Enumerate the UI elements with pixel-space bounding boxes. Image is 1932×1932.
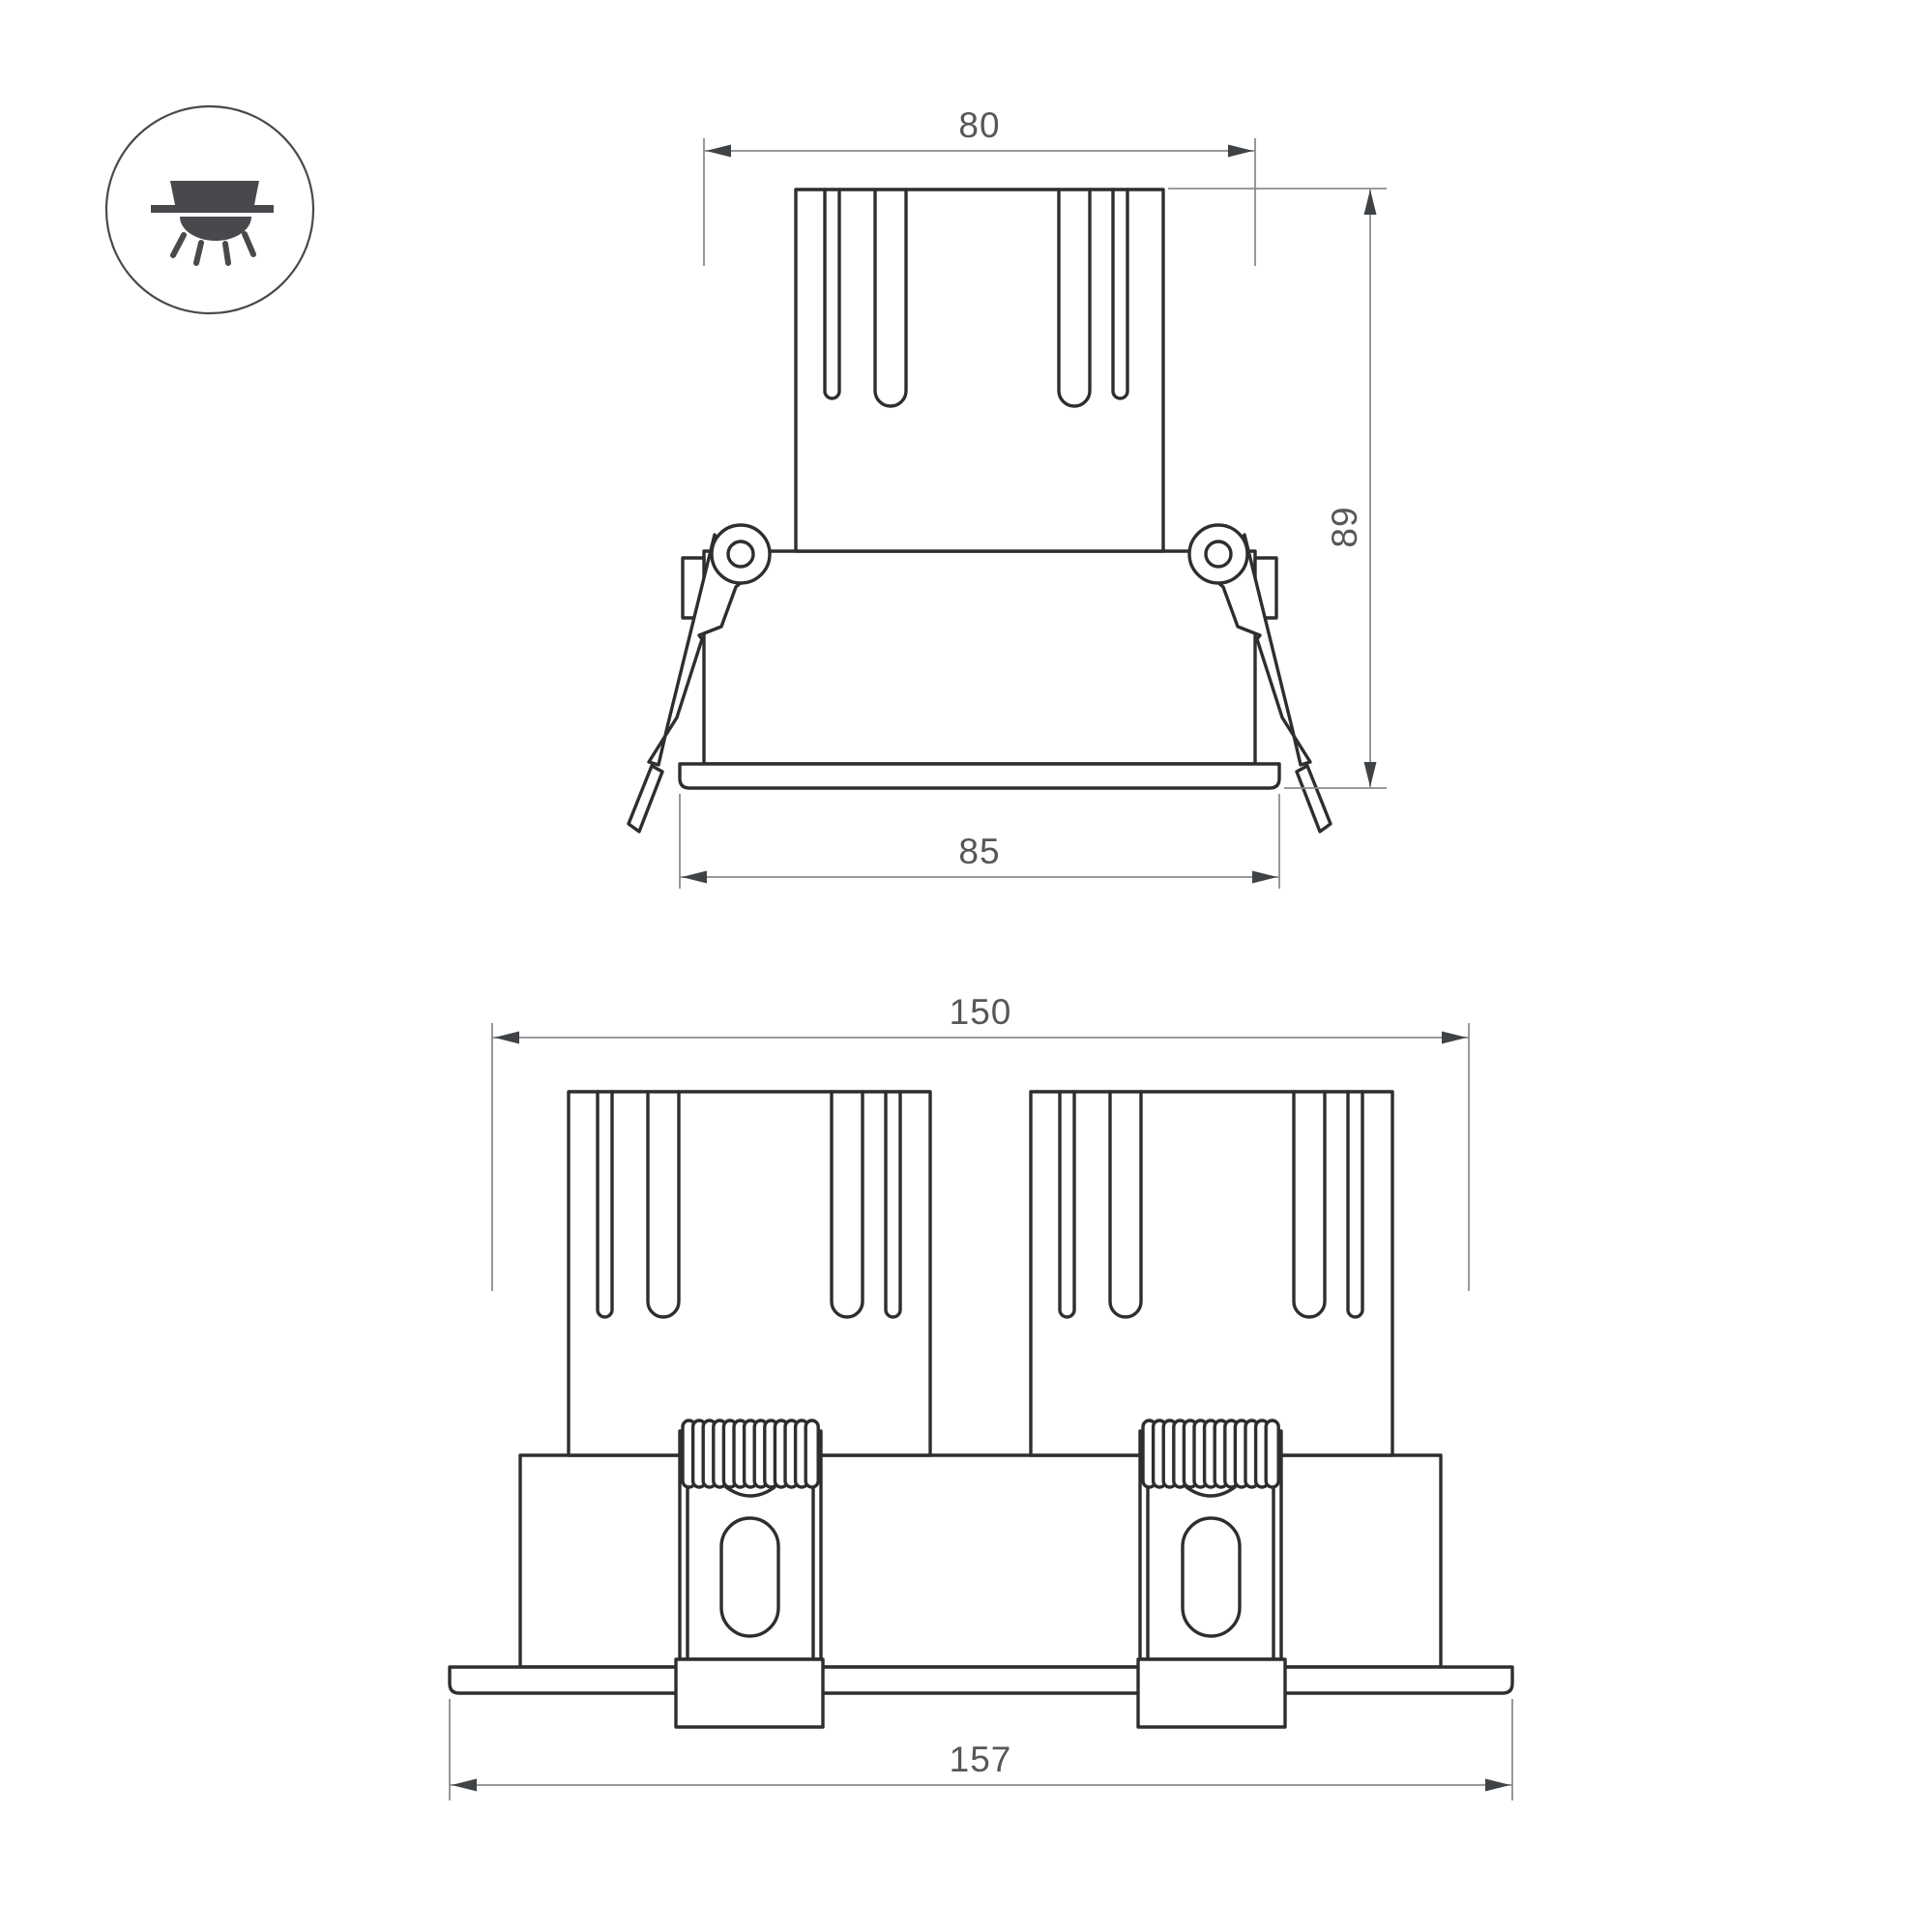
icon-light-ray [245,234,253,254]
icon-lamp-body [170,181,259,205]
coil-spring [683,1420,818,1487]
heatsink-body [1031,1092,1392,1455]
single-luminaire-view: 80 89 85 [629,105,1387,889]
icon-light-ray [173,235,184,255]
dimension-label-80: 80 [958,105,1000,145]
icon-light-dome [180,217,251,241]
clip-pivot-hole [728,542,753,567]
technical-drawing: 80 89 85 [0,0,1932,1932]
icon-light-ray [196,243,201,263]
heatsink-right [1031,1092,1392,1455]
arrowhead-left [682,871,707,884]
heatsink [796,190,1163,551]
icon-light-ray [225,244,228,263]
clip-foot-block [676,1659,823,1727]
arrowhead-right [1252,871,1277,884]
twin-base-body [520,1455,1441,1667]
clip-foot-block [1138,1659,1285,1727]
arrowhead-right [1485,1779,1510,1792]
heatsink-body [569,1092,930,1455]
bracket-slot-hole [1183,1518,1240,1636]
icon-ceiling-flange [151,205,274,213]
flange [680,764,1279,788]
clip-pivot-hole [1206,542,1231,567]
arrowhead-left [452,1779,477,1792]
clip-assembly-right [1138,1420,1285,1727]
dimension-flange-157: 157 [450,1699,1512,1800]
dimension-label-157: 157 [950,1740,1012,1779]
arrowhead-left [706,145,731,158]
heatsink-left [569,1092,930,1455]
heatsink-body [796,190,1163,551]
dimension-label-89: 89 [1325,506,1364,547]
bracket-slot-hole [721,1518,778,1636]
arrowhead-down [1364,762,1377,787]
dimension-label-150: 150 [950,992,1012,1032]
dimension-label-85: 85 [958,832,1000,871]
arrowhead-right [1228,145,1253,158]
drawing-sheet: 80 89 85 [0,0,1932,1932]
arrowhead-left [494,1032,519,1044]
clip-assembly-left [676,1420,823,1727]
arrowhead-up [1364,190,1377,215]
coil-spring [1143,1420,1278,1487]
trim-body [704,551,1255,764]
twin-luminaire-view: 150 157 [450,992,1512,1800]
clip-foot [629,766,662,832]
dimension-flange-85: 85 [680,794,1279,889]
arrowhead-right [1442,1032,1467,1044]
recessed-downlight-icon [106,106,313,313]
clip-foot [1297,766,1331,832]
twin-flange [450,1667,1512,1693]
